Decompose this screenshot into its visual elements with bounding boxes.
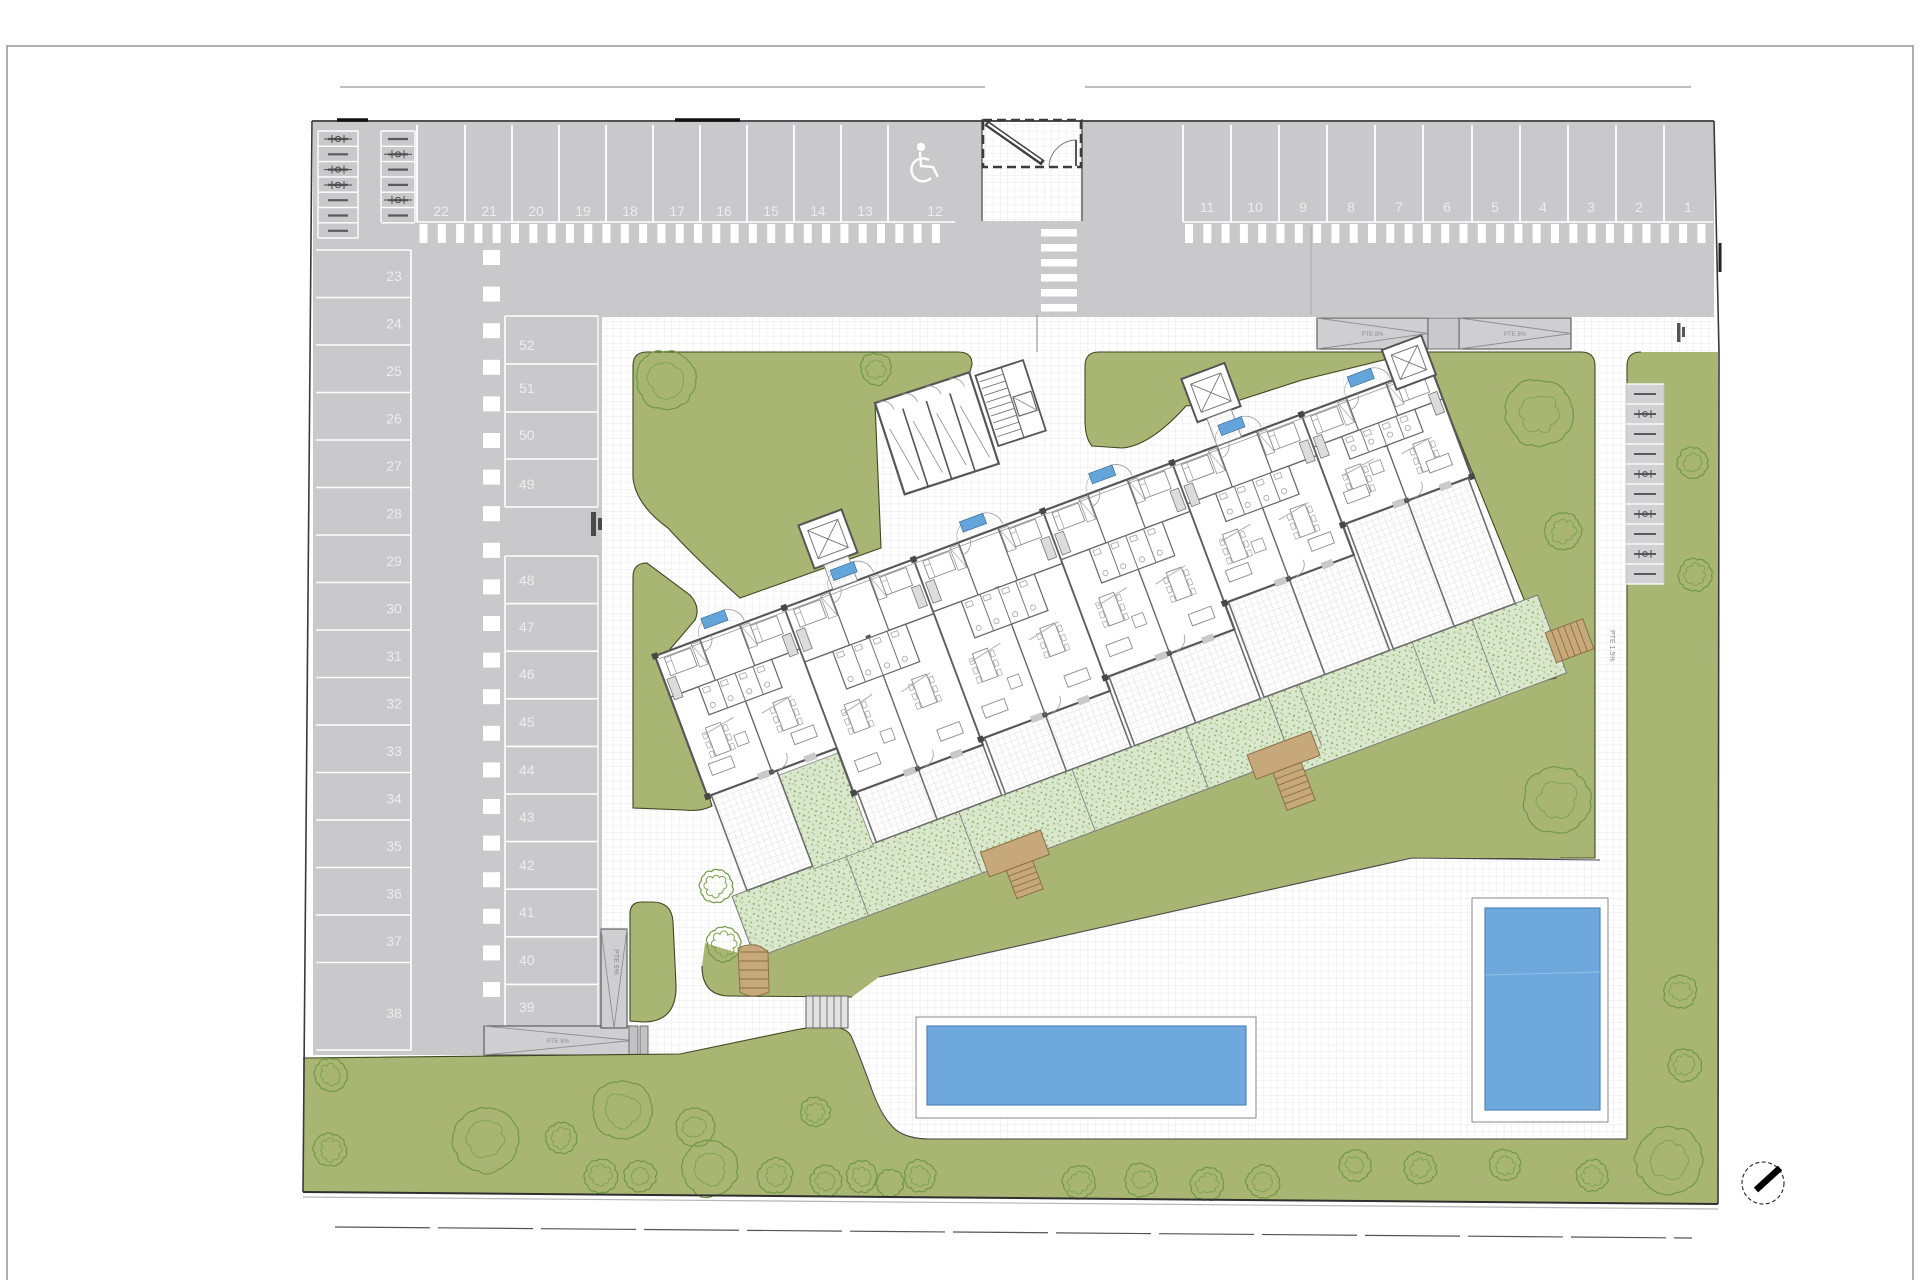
svg-text:41: 41	[519, 904, 535, 920]
svg-text:13: 13	[857, 203, 873, 219]
svg-text:28: 28	[386, 506, 402, 522]
svg-text:52: 52	[519, 337, 535, 353]
svg-text:33: 33	[386, 743, 402, 759]
svg-text:25: 25	[386, 363, 402, 379]
svg-text:43: 43	[519, 809, 535, 825]
svg-text:3: 3	[1587, 199, 1595, 215]
svg-text:8: 8	[1347, 199, 1355, 215]
svg-text:PTE 8%: PTE 8%	[547, 1039, 570, 1045]
svg-text:42: 42	[519, 857, 535, 873]
svg-text:40: 40	[519, 952, 535, 968]
svg-text:31: 31	[386, 648, 402, 664]
svg-text:32: 32	[386, 696, 402, 712]
svg-text:27: 27	[386, 458, 402, 474]
svg-text:39: 39	[519, 999, 535, 1015]
svg-text:38: 38	[386, 1005, 402, 1021]
svg-text:46: 46	[519, 666, 535, 682]
svg-text:23: 23	[386, 268, 402, 284]
svg-text:50: 50	[519, 427, 535, 443]
svg-text:9: 9	[1299, 199, 1307, 215]
svg-text:1: 1	[1684, 199, 1692, 215]
svg-text:21: 21	[481, 203, 497, 219]
svg-text:20: 20	[528, 203, 544, 219]
svg-text:16: 16	[716, 203, 732, 219]
svg-text:44: 44	[519, 762, 535, 778]
svg-text:PTE 8%: PTE 8%	[1361, 332, 1384, 338]
svg-text:45: 45	[519, 714, 535, 730]
svg-text:4: 4	[1539, 199, 1547, 215]
svg-text:24: 24	[386, 316, 402, 332]
svg-text:14: 14	[810, 203, 826, 219]
svg-text:48: 48	[519, 572, 535, 588]
svg-text:2: 2	[1635, 199, 1643, 215]
svg-text:37: 37	[386, 933, 402, 949]
svg-text:PTE 8%: PTE 8%	[1504, 332, 1527, 338]
svg-text:11: 11	[1200, 199, 1215, 215]
svg-text:15: 15	[763, 203, 779, 219]
svg-text:7: 7	[1395, 199, 1403, 215]
svg-text:6: 6	[1443, 199, 1451, 215]
svg-text:22: 22	[433, 203, 449, 219]
svg-text:34: 34	[386, 791, 402, 807]
svg-text:5: 5	[1491, 199, 1499, 215]
svg-text:17: 17	[669, 203, 685, 219]
svg-text:10: 10	[1247, 199, 1263, 215]
svg-text:12: 12	[927, 203, 943, 219]
svg-text:35: 35	[386, 838, 402, 854]
svg-text:49: 49	[519, 476, 535, 492]
svg-text:PTE 1.5%: PTE 1.5%	[1608, 630, 1615, 662]
svg-text:36: 36	[386, 886, 402, 902]
svg-text:PTE 6%: PTE 6%	[612, 949, 619, 975]
svg-text:26: 26	[386, 411, 402, 427]
svg-text:51: 51	[519, 380, 535, 396]
svg-text:18: 18	[622, 203, 638, 219]
svg-text:29: 29	[386, 553, 402, 569]
svg-text:30: 30	[386, 601, 402, 617]
svg-text:19: 19	[575, 203, 591, 219]
svg-text:47: 47	[519, 619, 535, 635]
